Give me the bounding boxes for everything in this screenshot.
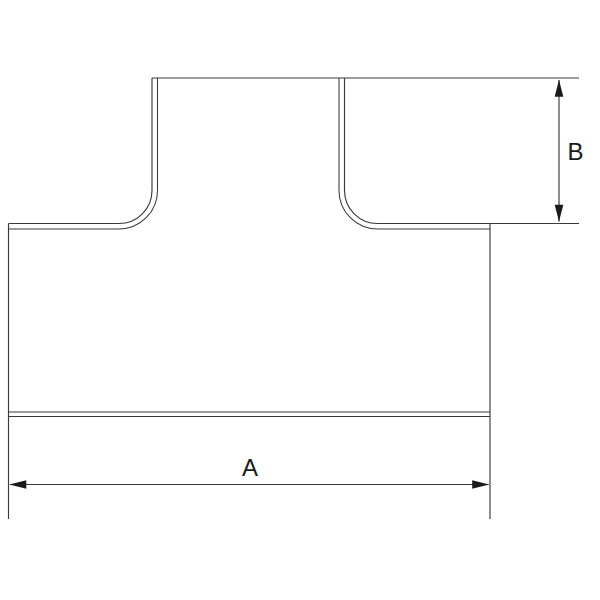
dimension-a: A bbox=[9, 454, 489, 489]
tee-outline-inner bbox=[9, 78, 491, 412]
branch-right-outer-wall bbox=[345, 78, 580, 224]
dimension-b-label: B bbox=[568, 138, 584, 165]
dimension-a-label: A bbox=[242, 454, 258, 481]
branch-right-inner-wall bbox=[339, 78, 490, 229]
arrow-down-icon bbox=[555, 205, 564, 222]
arrow-up-icon bbox=[555, 80, 564, 97]
tee-dimension-drawing: A B bbox=[0, 0, 600, 600]
dimension-b: B bbox=[555, 80, 584, 222]
branch-left-inner-wall bbox=[9, 78, 158, 229]
arrow-right-icon bbox=[472, 480, 489, 489]
tee-outline-outer bbox=[9, 78, 580, 519]
branch-left-outer-wall bbox=[9, 78, 153, 224]
arrow-left-icon bbox=[9, 480, 26, 489]
drawing-canvas: A B bbox=[0, 0, 600, 600]
